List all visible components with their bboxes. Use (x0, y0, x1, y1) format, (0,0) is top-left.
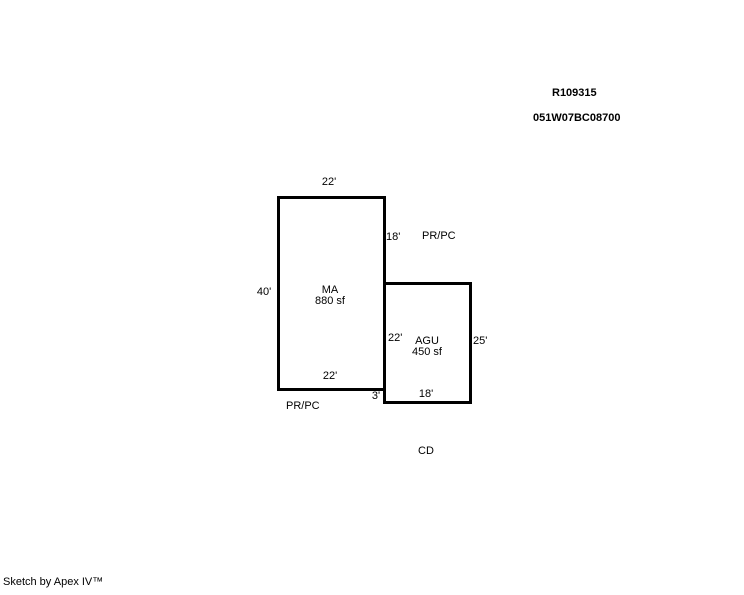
cd-label: CD (418, 445, 434, 458)
prpc-upper-label: PR/PC (422, 230, 456, 243)
agu-label: AGU 450 sf (412, 336, 442, 358)
ma-area: 880 sf (315, 296, 345, 307)
ma-dim-bottom: 22' (323, 370, 337, 383)
agu-area: 450 sf (412, 347, 442, 358)
ma-label: MA 880 sf (315, 285, 345, 307)
agu-dim-left-lower: 3' (372, 390, 380, 403)
prpc-lower-label: PR/PC (286, 400, 320, 413)
agu-dim-right: 25' (473, 335, 487, 348)
parcel-id: 051W07BC08700 (533, 112, 620, 125)
ma-dim-right-upper: 18' (386, 231, 400, 244)
record-id: R109315 (552, 87, 597, 100)
sketch-page: R109315 051W07BC08700 22' 40' 22' 18' MA… (0, 0, 744, 595)
agu-dim-left-upper: 22' (388, 332, 402, 345)
ma-dim-left: 40' (257, 286, 271, 299)
ma-dim-top: 22' (322, 176, 336, 189)
agu-dim-bottom: 18' (419, 388, 433, 401)
footer-credit: Sketch by Apex IV™ (3, 576, 103, 589)
